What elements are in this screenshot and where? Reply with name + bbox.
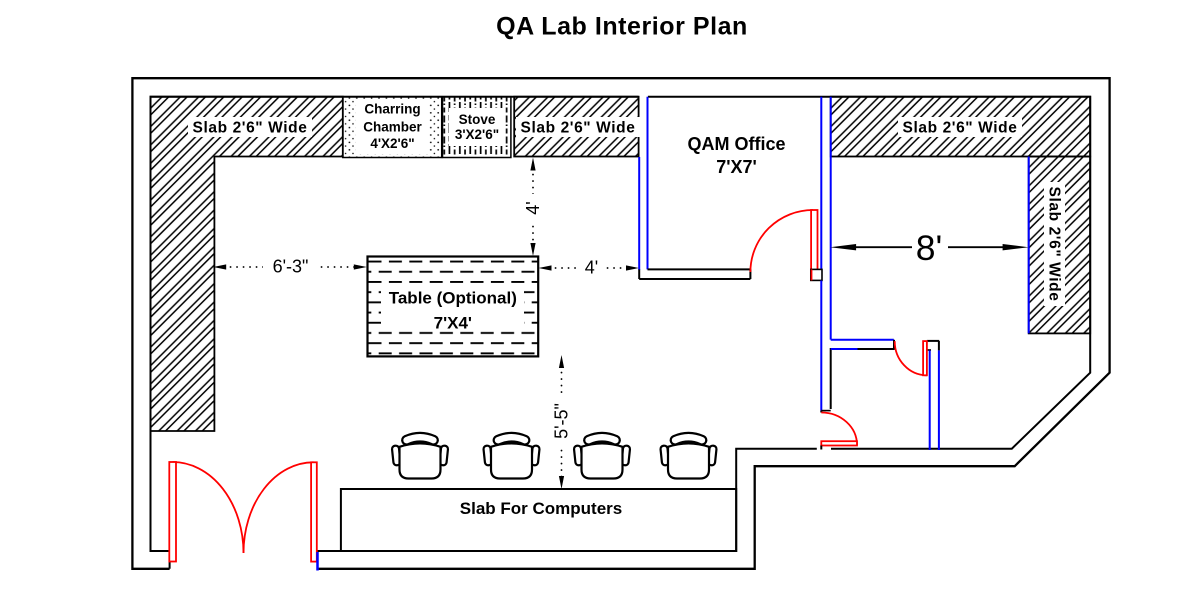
svg-text:7'X7': 7'X7' — [716, 157, 757, 177]
svg-text:Slab 2'6" Wide: Slab 2'6" Wide — [193, 120, 308, 137]
svg-text:8': 8' — [916, 228, 943, 268]
svg-text:6'-3": 6'-3" — [273, 257, 309, 277]
svg-text:QA Lab Interior Plan: QA Lab Interior Plan — [496, 13, 748, 41]
svg-text:5'-5": 5'-5" — [552, 403, 572, 439]
svg-text:3'X2'6": 3'X2'6" — [455, 127, 499, 142]
svg-text:Slab 2'6" Wide: Slab 2'6" Wide — [521, 120, 636, 137]
svg-text:Table (Optional): Table (Optional) — [389, 289, 517, 308]
svg-text:4': 4' — [585, 258, 598, 278]
svg-text:Slab 2'6" Wide: Slab 2'6" Wide — [1046, 187, 1063, 302]
svg-text:Slab For Computers: Slab For Computers — [460, 499, 622, 518]
svg-text:7'X4': 7'X4' — [434, 314, 472, 333]
svg-text:4': 4' — [523, 201, 543, 214]
svg-text:4'X2'6": 4'X2'6" — [370, 136, 414, 151]
svg-text:Charring: Charring — [364, 102, 420, 117]
svg-text:Chamber: Chamber — [363, 120, 422, 135]
svg-text:QAM Office: QAM Office — [687, 134, 785, 154]
svg-text:Stove: Stove — [459, 112, 496, 127]
svg-text:Slab 2'6" Wide: Slab 2'6" Wide — [903, 120, 1018, 137]
